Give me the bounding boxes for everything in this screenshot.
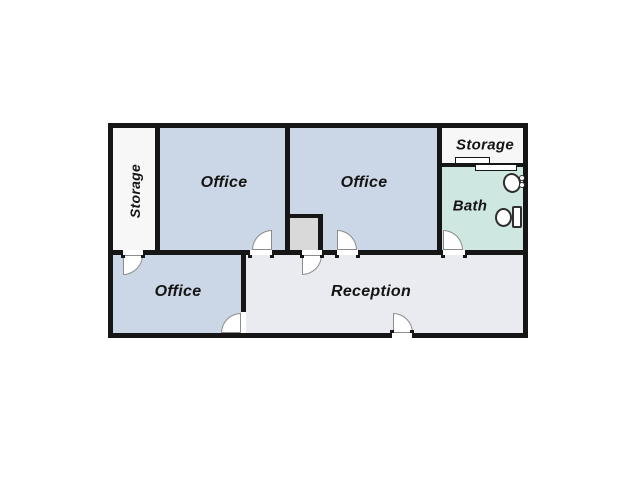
door-jamb bbox=[441, 255, 445, 258]
wall-segment bbox=[523, 123, 528, 338]
room-label-storage-top-right: Storage bbox=[456, 137, 514, 154]
door-jamb bbox=[463, 255, 467, 258]
room-label-office-bottom-left: Office bbox=[155, 283, 202, 301]
door-jamb bbox=[335, 255, 339, 258]
room-label-office-top-middle: Office bbox=[341, 174, 388, 192]
wall-segment bbox=[318, 218, 323, 250]
room-label-bath: Bath bbox=[453, 198, 488, 215]
sliding-door-panel bbox=[455, 157, 490, 164]
room-label-storage-left: Storage bbox=[127, 164, 143, 218]
room-label-office-top-left: Office bbox=[201, 174, 248, 192]
wall-segment bbox=[465, 250, 528, 255]
door-jamb bbox=[141, 255, 145, 258]
wall-segment bbox=[241, 255, 246, 312]
wall-segment bbox=[412, 333, 528, 338]
sliding-door-panel bbox=[475, 164, 517, 171]
door-jamb bbox=[356, 255, 360, 258]
door-jamb bbox=[390, 330, 394, 333]
room-closet bbox=[290, 218, 318, 250]
wall-segment bbox=[108, 333, 392, 338]
door-jamb bbox=[410, 330, 414, 333]
wall-segment bbox=[272, 250, 302, 255]
room-label-reception: Reception bbox=[331, 283, 411, 301]
sink-knob-icon bbox=[519, 175, 525, 181]
door-jamb bbox=[300, 255, 304, 258]
wall-segment bbox=[108, 123, 528, 128]
door-jamb bbox=[248, 255, 252, 258]
sink-knob-icon bbox=[519, 182, 525, 188]
wall-segment bbox=[155, 128, 160, 250]
floor-plan: StorageOfficeOfficeStorageBathOfficeRece… bbox=[0, 0, 640, 480]
wall-segment bbox=[108, 123, 113, 338]
floor-plan-image: StorageOfficeOfficeStorageBathOfficeRece… bbox=[0, 0, 640, 480]
door-jamb bbox=[270, 255, 274, 258]
door-jamb bbox=[121, 255, 125, 258]
wall-segment bbox=[437, 128, 442, 250]
wall-segment bbox=[143, 250, 250, 255]
wall-segment bbox=[285, 128, 290, 250]
toilet-tank-icon bbox=[512, 206, 522, 228]
toilet-bowl-icon bbox=[495, 208, 512, 227]
wall-segment bbox=[358, 250, 443, 255]
door-jamb bbox=[320, 255, 324, 258]
